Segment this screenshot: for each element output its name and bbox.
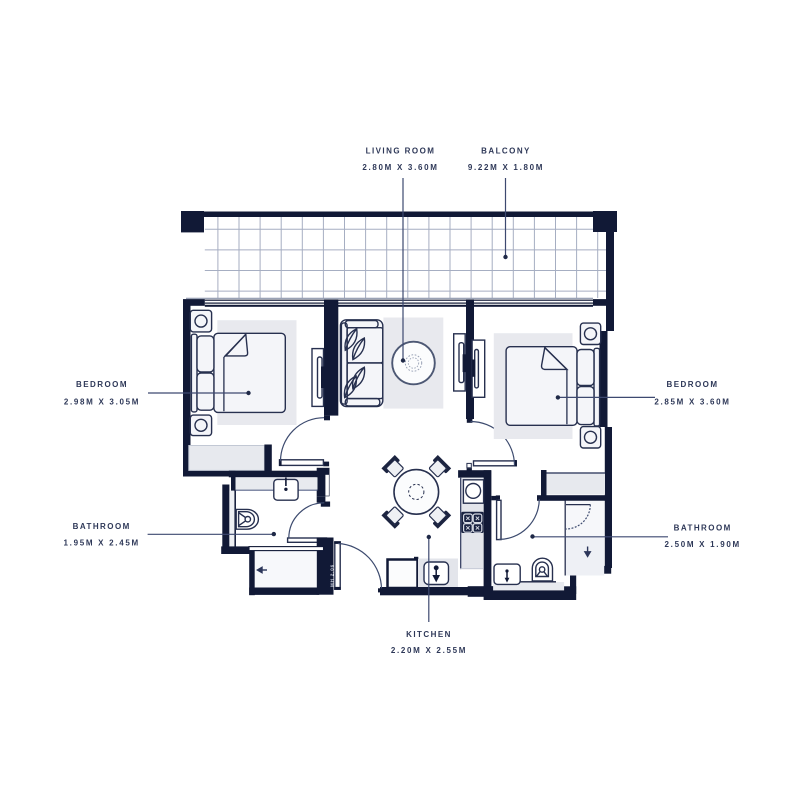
svg-text:1.95M X 2.45M: 1.95M X 2.45M — [64, 538, 140, 547]
svg-text:2.20M X 2.55M: 2.20M X 2.55M — [391, 646, 467, 655]
svg-text:LIVING ROOM: LIVING ROOM — [366, 146, 436, 155]
svg-text:2.98M X 3.05M: 2.98M X 3.05M — [64, 397, 140, 406]
svg-text:2.80M X 3.60M: 2.80M X 3.60M — [362, 163, 438, 172]
svg-text:KITCHEN: KITCHEN — [406, 630, 452, 639]
svg-text:BEDROOM: BEDROOM — [76, 380, 128, 389]
svg-text:2.50M X 1.90M: 2.50M X 1.90M — [665, 540, 741, 549]
svg-text:BALCONY: BALCONY — [481, 146, 531, 155]
svg-text:BATHROOM: BATHROOM — [73, 522, 131, 531]
svg-text:BEDROOM: BEDROOM — [667, 380, 719, 389]
svg-text:BATHROOM: BATHROOM — [674, 524, 732, 533]
svg-text:2.85M X 3.60M: 2.85M X 3.60M — [654, 397, 730, 406]
svg-text:9.22M X 1.80M: 9.22M X 1.80M — [468, 163, 544, 172]
svg-text:MH 2.06: MH 2.06 — [329, 564, 334, 587]
